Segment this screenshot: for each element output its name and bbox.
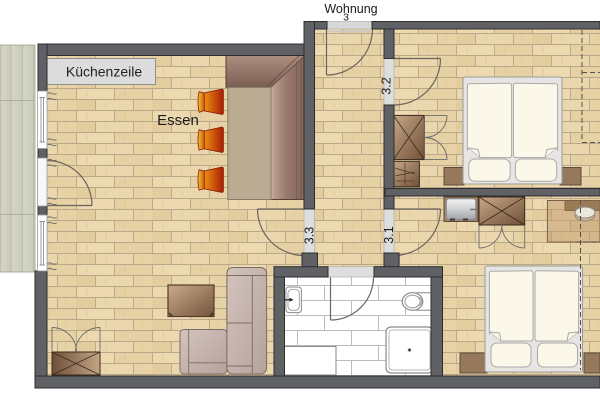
svg-text:Küchenzeile: Küchenzeile [66, 64, 142, 80]
svg-text:Essen: Essen [157, 112, 199, 129]
svg-text:3: 3 [343, 12, 349, 24]
svg-text:3.3: 3.3 [303, 227, 317, 244]
svg-text:3.2: 3.2 [380, 77, 394, 94]
svg-text:Wohnung: Wohnung [324, 2, 377, 16]
svg-text:3.1: 3.1 [382, 226, 396, 243]
